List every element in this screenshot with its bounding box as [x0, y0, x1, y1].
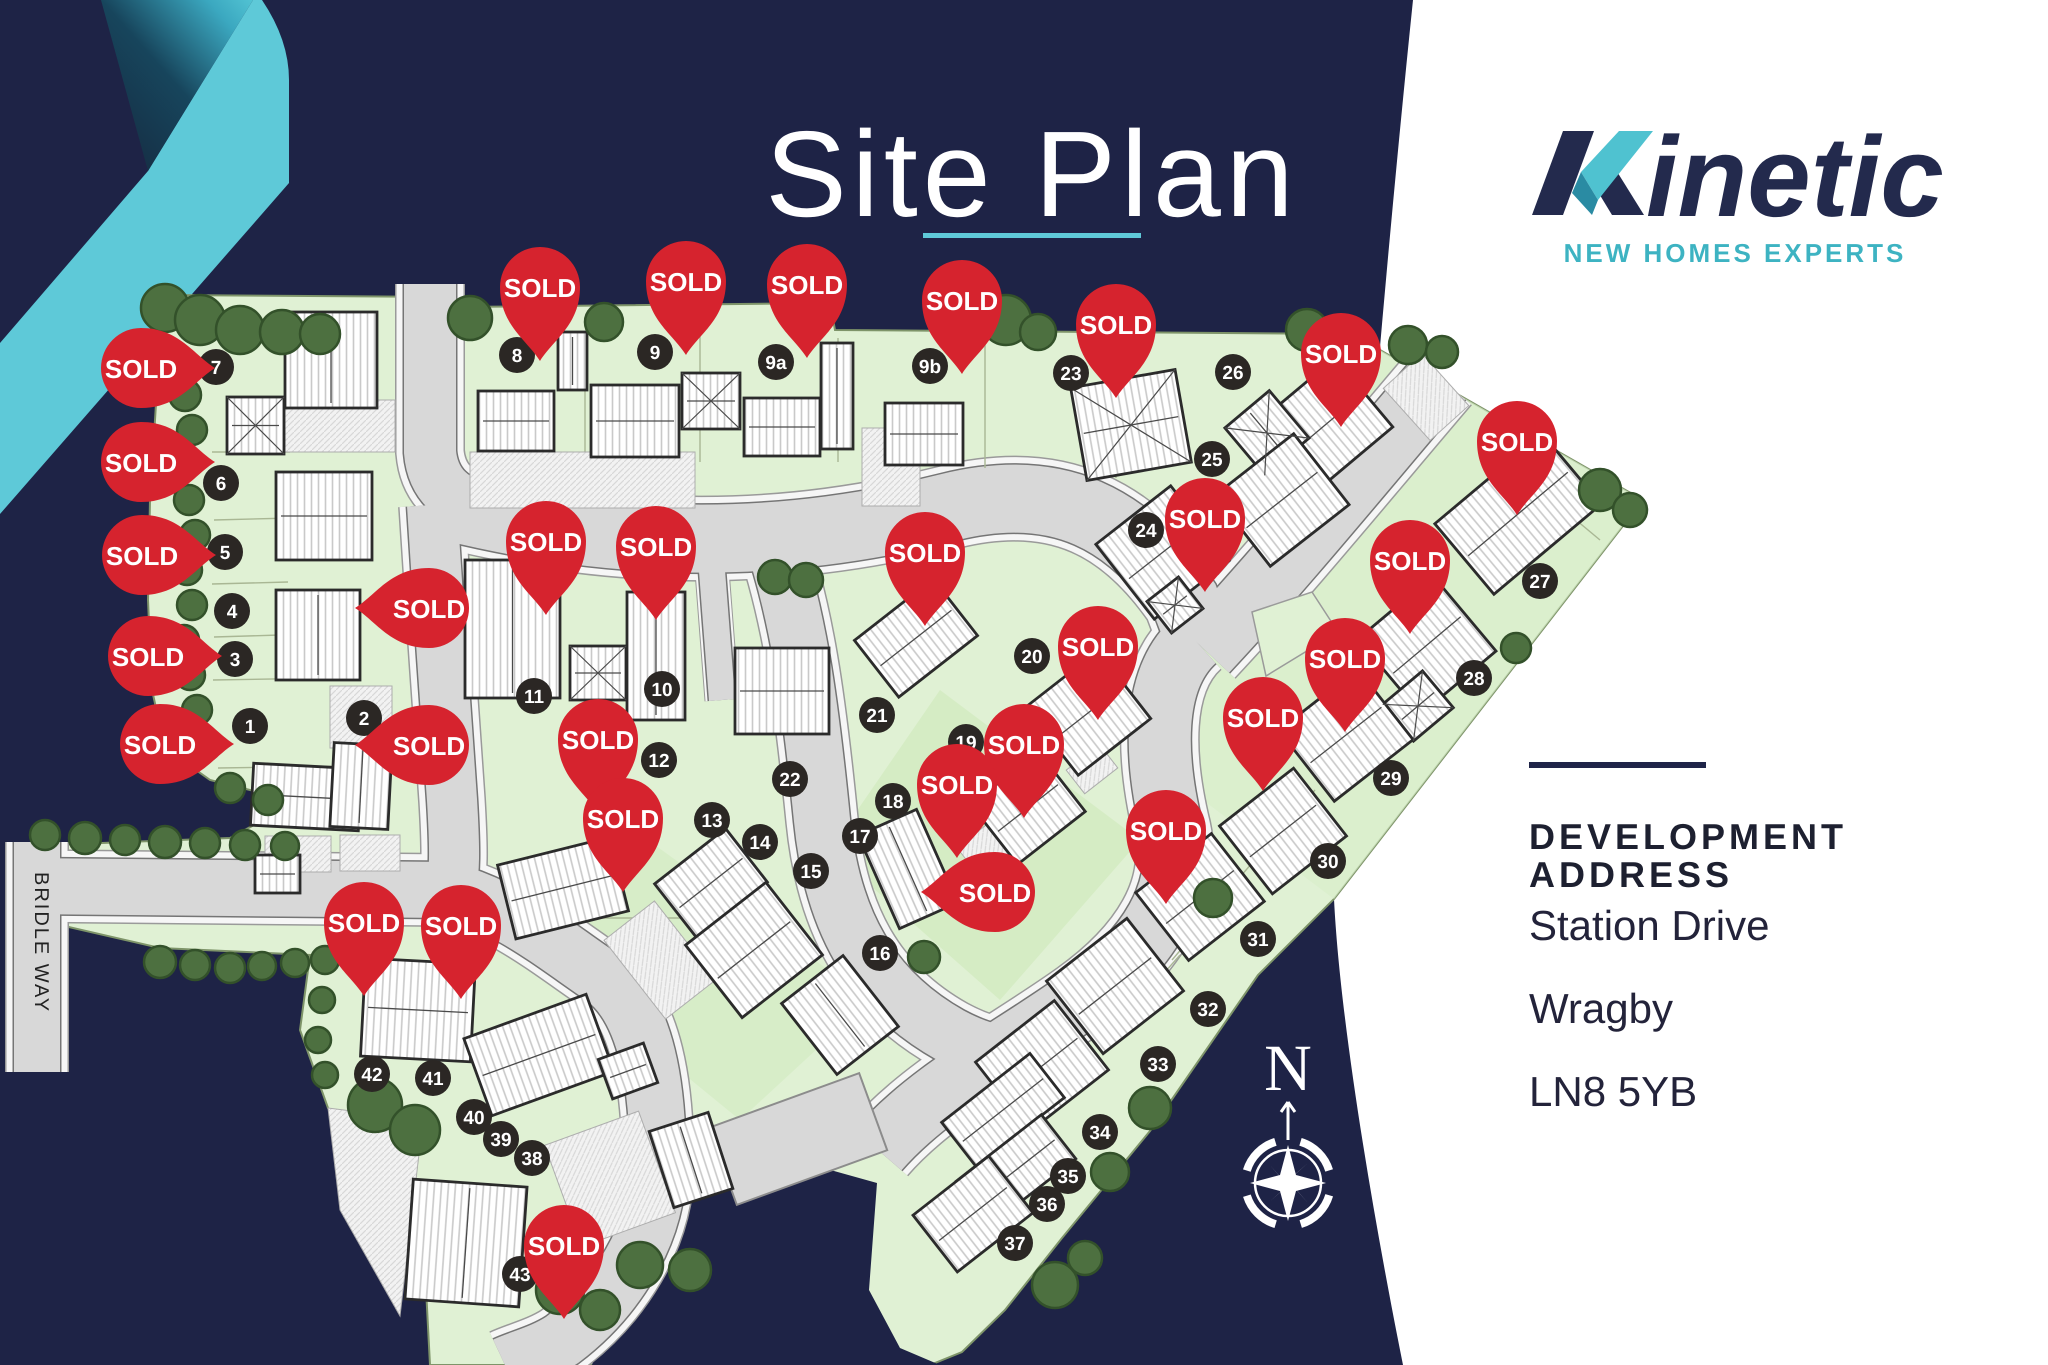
svg-text:1: 1: [245, 717, 256, 738]
svg-text:LN8 5YB: LN8 5YB: [1529, 1068, 1697, 1115]
svg-text:14: 14: [749, 833, 771, 854]
svg-text:38: 38: [521, 1149, 542, 1170]
svg-text:21: 21: [866, 706, 888, 727]
svg-text:28: 28: [1463, 669, 1484, 690]
svg-text:3: 3: [230, 650, 241, 671]
svg-text:42: 42: [361, 1065, 382, 1086]
svg-text:17: 17: [849, 827, 870, 848]
svg-text:27: 27: [1529, 572, 1550, 593]
svg-text:DEVELOPMENT: DEVELOPMENT: [1529, 816, 1847, 857]
svg-text:Wragby: Wragby: [1529, 985, 1673, 1032]
svg-text:34: 34: [1089, 1123, 1111, 1144]
svg-text:9b: 9b: [919, 357, 941, 378]
svg-text:13: 13: [701, 811, 722, 832]
svg-text:8: 8: [512, 346, 523, 367]
svg-text:ADDRESS: ADDRESS: [1529, 854, 1733, 895]
svg-text:24: 24: [1135, 521, 1157, 542]
svg-text:36: 36: [1036, 1195, 1057, 1216]
svg-text:22: 22: [779, 770, 800, 791]
svg-text:23: 23: [1060, 364, 1081, 385]
svg-text:40: 40: [463, 1108, 484, 1129]
svg-text:11: 11: [524, 687, 545, 708]
svg-text:20: 20: [1021, 647, 1042, 668]
svg-text:33: 33: [1147, 1055, 1168, 1076]
svg-text:2: 2: [359, 709, 370, 730]
svg-text:NEW HOMES EXPERTS: NEW HOMES EXPERTS: [1564, 238, 1907, 268]
svg-text:35: 35: [1057, 1167, 1079, 1188]
svg-text:25: 25: [1201, 450, 1223, 471]
svg-text:5: 5: [220, 543, 231, 564]
svg-text:29: 29: [1380, 769, 1401, 790]
svg-text:6: 6: [216, 474, 227, 495]
svg-text:9: 9: [650, 343, 661, 364]
svg-text:Station Drive: Station Drive: [1529, 902, 1769, 949]
svg-text:43: 43: [509, 1265, 530, 1286]
svg-text:31: 31: [1247, 930, 1269, 951]
svg-text:18: 18: [882, 792, 903, 813]
svg-text:15: 15: [800, 862, 822, 883]
svg-text:Site Plan: Site Plan: [765, 106, 1298, 242]
svg-text:30: 30: [1317, 852, 1338, 873]
svg-text:37: 37: [1004, 1234, 1025, 1255]
svg-text:10: 10: [651, 680, 672, 701]
svg-text:26: 26: [1222, 363, 1243, 384]
svg-text:41: 41: [422, 1069, 444, 1090]
svg-text:9a: 9a: [765, 353, 787, 374]
svg-text:16: 16: [869, 944, 890, 965]
svg-text:12: 12: [648, 751, 669, 772]
svg-text:39: 39: [490, 1130, 511, 1151]
svg-text:BRIDLE WAY: BRIDLE WAY: [30, 872, 52, 1013]
svg-text:inetic: inetic: [1646, 114, 1944, 241]
svg-text:32: 32: [1197, 1000, 1218, 1021]
svg-text:N: N: [1264, 1032, 1312, 1105]
svg-text:4: 4: [227, 602, 238, 623]
